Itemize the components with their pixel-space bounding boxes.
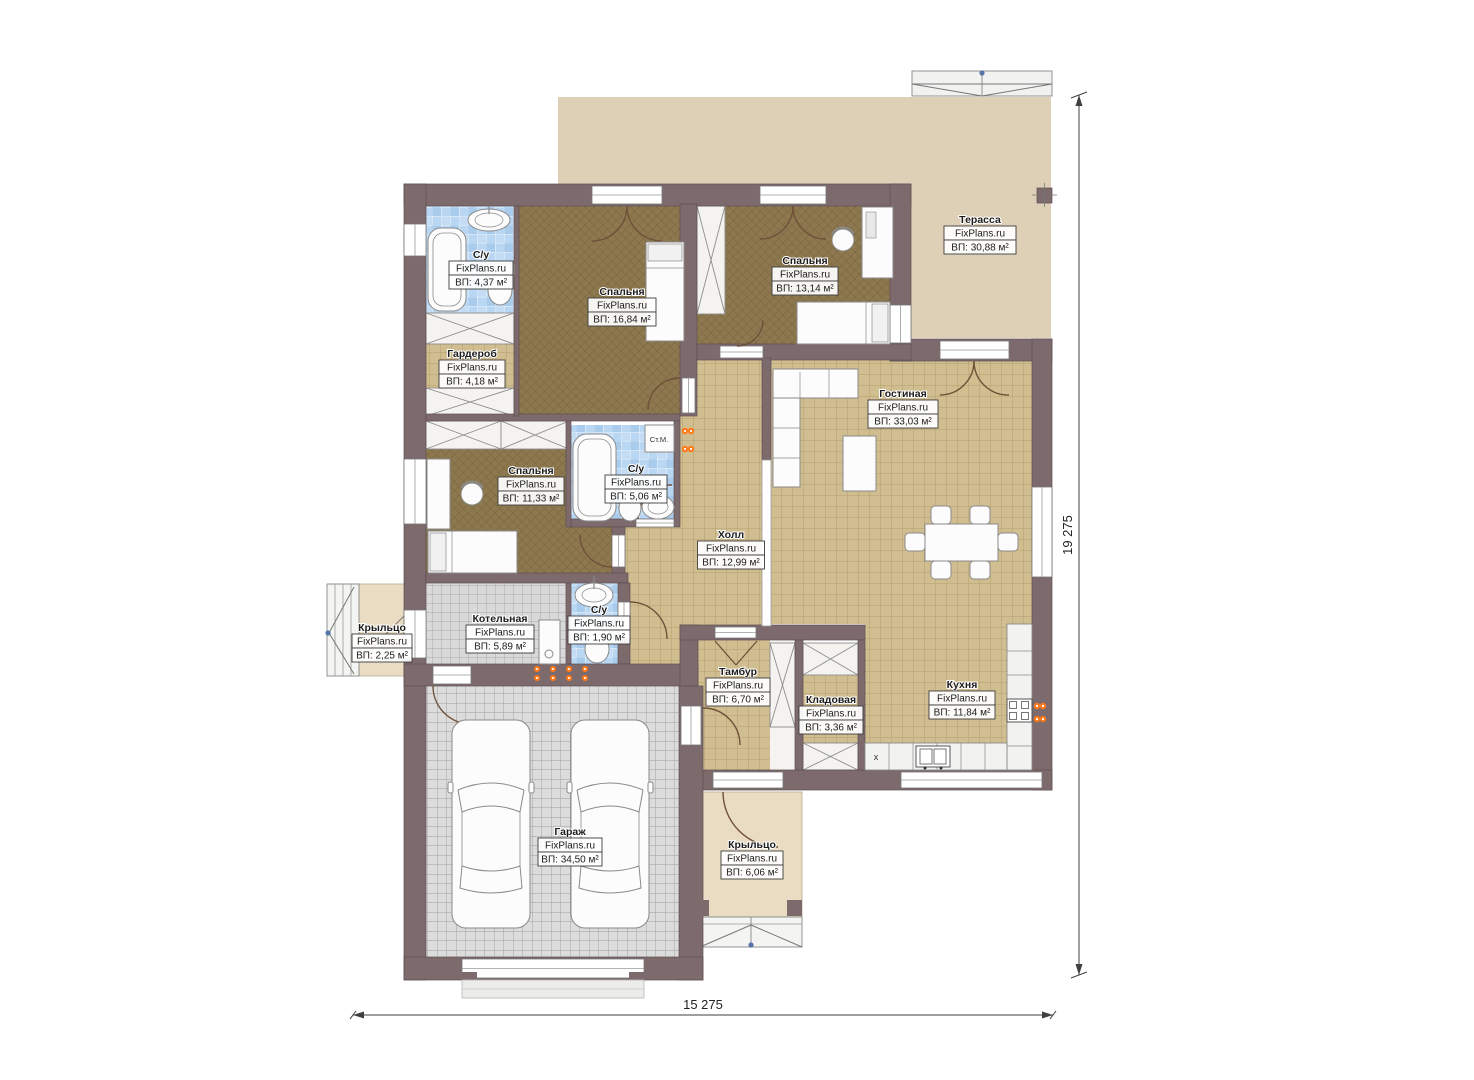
svg-text:Холл: Холл (718, 529, 744, 541)
svg-text:FixPlans.ru: FixPlans.ru (806, 709, 856, 720)
svg-text:Гараж: Гараж (554, 826, 586, 838)
svg-text:FixPlans.ru: FixPlans.ru (937, 694, 987, 705)
svg-text:Котельная: Котельная (473, 613, 528, 625)
svg-text:FixPlans.ru: FixPlans.ru (357, 637, 407, 648)
svg-text:С/у: С/у (473, 249, 490, 261)
svg-text:С/у: С/у (628, 463, 645, 475)
svg-text:ВП: 5,06 м²: ВП: 5,06 м² (610, 492, 663, 503)
svg-text:ВП: 11,84 м²: ВП: 11,84 м² (934, 708, 991, 719)
svg-text:Гостиная: Гостиная (879, 388, 926, 400)
svg-text:ВП: 2,25 м²: ВП: 2,25 м² (356, 651, 409, 662)
svg-text:FixPlans.ru: FixPlans.ru (713, 681, 763, 692)
svg-text:Терасса: Терасса (959, 214, 1001, 226)
svg-text:FixPlans.ru: FixPlans.ru (727, 854, 777, 865)
svg-text:FixPlans.ru: FixPlans.ru (955, 229, 1005, 240)
svg-text:ВП: 6,70 м²: ВП: 6,70 м² (712, 695, 765, 706)
svg-text:Спальня: Спальня (782, 255, 827, 267)
svg-text:ВП: 33,03 м²: ВП: 33,03 м² (874, 417, 932, 428)
svg-text:ВП: 12,99 м²: ВП: 12,99 м² (702, 558, 760, 569)
svg-text:FixPlans.ru: FixPlans.ru (611, 478, 661, 489)
svg-text:FixPlans.ru: FixPlans.ru (878, 403, 928, 414)
svg-text:FixPlans.ru: FixPlans.ru (506, 480, 556, 491)
svg-text:Кладовая: Кладовая (806, 694, 856, 706)
svg-text:ВП: 5,89 м²: ВП: 5,89 м² (474, 642, 527, 653)
svg-text:Тамбур: Тамбур (719, 666, 757, 678)
svg-text:FixPlans.ru: FixPlans.ru (456, 264, 506, 275)
svg-text:ВП: 4,37 м²: ВП: 4,37 м² (455, 278, 508, 289)
svg-text:Спальня: Спальня (508, 465, 553, 477)
svg-text:Крыльцо: Крыльцо (728, 839, 776, 851)
svg-text:x: x (874, 752, 879, 762)
svg-text:ВП: 4,18 м²: ВП: 4,18 м² (446, 377, 499, 388)
svg-text:FixPlans.ru: FixPlans.ru (447, 363, 497, 374)
svg-text:ВП: 11,33 м²: ВП: 11,33 м² (503, 494, 560, 505)
svg-text:19 275: 19 275 (1060, 515, 1075, 555)
svg-text:FixPlans.ru: FixPlans.ru (780, 270, 830, 281)
svg-text:15 275: 15 275 (683, 997, 723, 1012)
svg-text:ВП: 1,90 м²: ВП: 1,90 м² (573, 633, 626, 644)
svg-text:Гардероб: Гардероб (447, 348, 497, 360)
svg-text:Ст.М.: Ст.М. (650, 435, 668, 444)
svg-text:ВП: 34,50 м²: ВП: 34,50 м² (541, 855, 599, 866)
svg-text:FixPlans.ru: FixPlans.ru (475, 628, 525, 639)
svg-text:ВП: 30,88 м²: ВП: 30,88 м² (951, 243, 1009, 254)
svg-text:ВП: 13,14 м²: ВП: 13,14 м² (776, 284, 834, 295)
svg-text:ВП: 16,84 м²: ВП: 16,84 м² (593, 315, 651, 326)
svg-text:С/у: С/у (591, 604, 608, 616)
svg-text:ВП: 3,36 м²: ВП: 3,36 м² (805, 723, 858, 734)
svg-text:FixPlans.ru: FixPlans.ru (597, 301, 647, 312)
svg-text:FixPlans.ru: FixPlans.ru (545, 841, 595, 852)
svg-text:FixPlans.ru: FixPlans.ru (706, 544, 756, 555)
svg-text:ВП: 6,06 м²: ВП: 6,06 м² (726, 868, 779, 879)
svg-text:Спальня: Спальня (599, 286, 644, 298)
svg-text:Кухня: Кухня (947, 679, 978, 691)
svg-text:FixPlans.ru: FixPlans.ru (574, 619, 624, 630)
svg-text:Крыльцо: Крыльцо (358, 622, 406, 634)
